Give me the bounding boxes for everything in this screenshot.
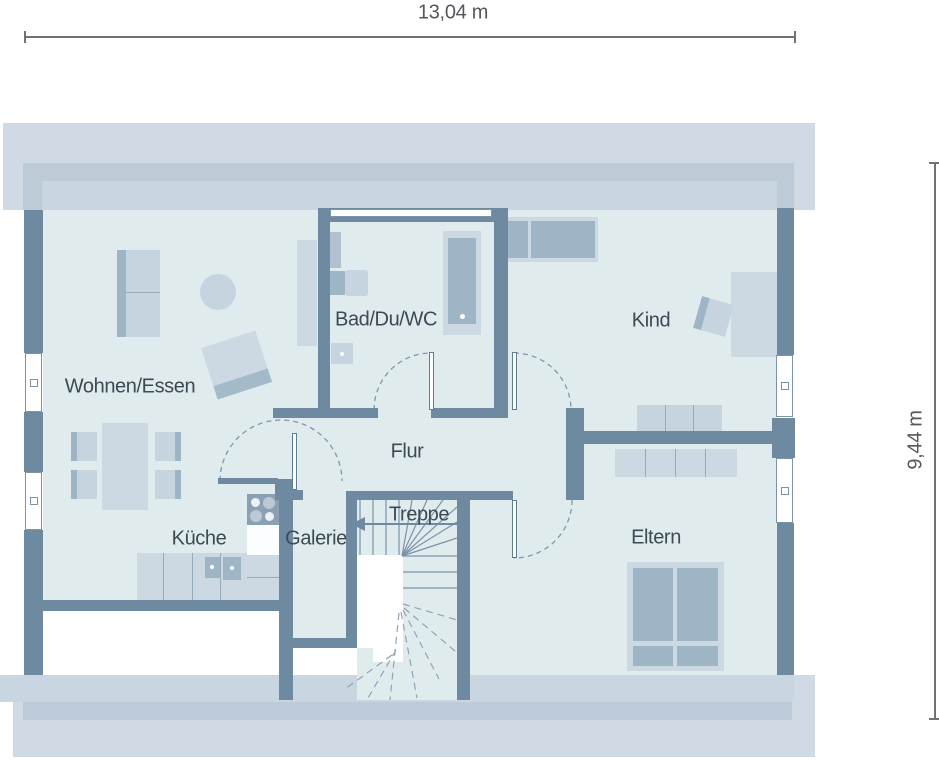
height-dimension-tick-top [929,162,939,164]
bath-wall-right [494,208,508,417]
floor-plan: 13,04 m 9,44 m [0,0,939,761]
kind-eltern-wall [584,431,777,444]
exterior-wall-right [777,523,794,675]
stair-wall-right [457,500,470,700]
stair-wall-left [346,491,357,648]
window-pane [781,382,789,390]
flur-eltern-corner-wall [566,408,584,500]
room-label-eltern: Eltern [631,527,681,550]
door-leaf-kueche [292,433,297,490]
treppe-wall-top [346,491,513,500]
window-pane [781,487,789,495]
window-right-upper [776,355,793,417]
room-label-kind: Kind [632,310,670,333]
window-right-lower [776,458,793,523]
room-label-kueche: Küche [172,528,227,551]
window-pane [30,497,38,505]
room-label-bad: Bad/Du/WC [335,309,437,332]
width-dimension-tick-right [794,31,796,43]
height-dimension-label: 9,44 m [905,410,928,469]
door-leaf-kind [512,352,517,410]
door-leaf-bad [429,352,434,410]
exterior-wall-left [24,210,43,353]
room-label-wohnen-essen: Wohnen/Essen [65,376,195,399]
window-left-lower [25,472,42,530]
height-dimension-line [934,163,936,720]
knee-wall-bottom [24,600,283,611]
exterior-wall-left [24,412,43,472]
room-label-flur: Flur [391,441,424,464]
galerie-wall-stub [293,490,303,500]
room-label-treppe: Treppe [389,504,449,527]
flur-wall-top-left [273,408,378,418]
room-label-galerie: Galerie [285,528,347,551]
width-dimension-tick-left [24,31,26,43]
exterior-wall-right [777,208,794,355]
width-dimension-label: 13,04 m [418,2,488,25]
height-dimension-tick-bottom [929,718,939,720]
width-dimension-line [25,36,795,38]
galerie-wall-left [279,479,293,700]
galerie-wall-bottom [283,638,357,648]
window-pane [30,379,38,387]
flur-wall-top-right [431,408,508,418]
galerie-railing [218,478,278,484]
door-leaf-eltern [512,500,517,558]
window-bath-top [330,209,492,217]
bath-wall-left [318,210,330,417]
window-left-upper [25,353,42,412]
